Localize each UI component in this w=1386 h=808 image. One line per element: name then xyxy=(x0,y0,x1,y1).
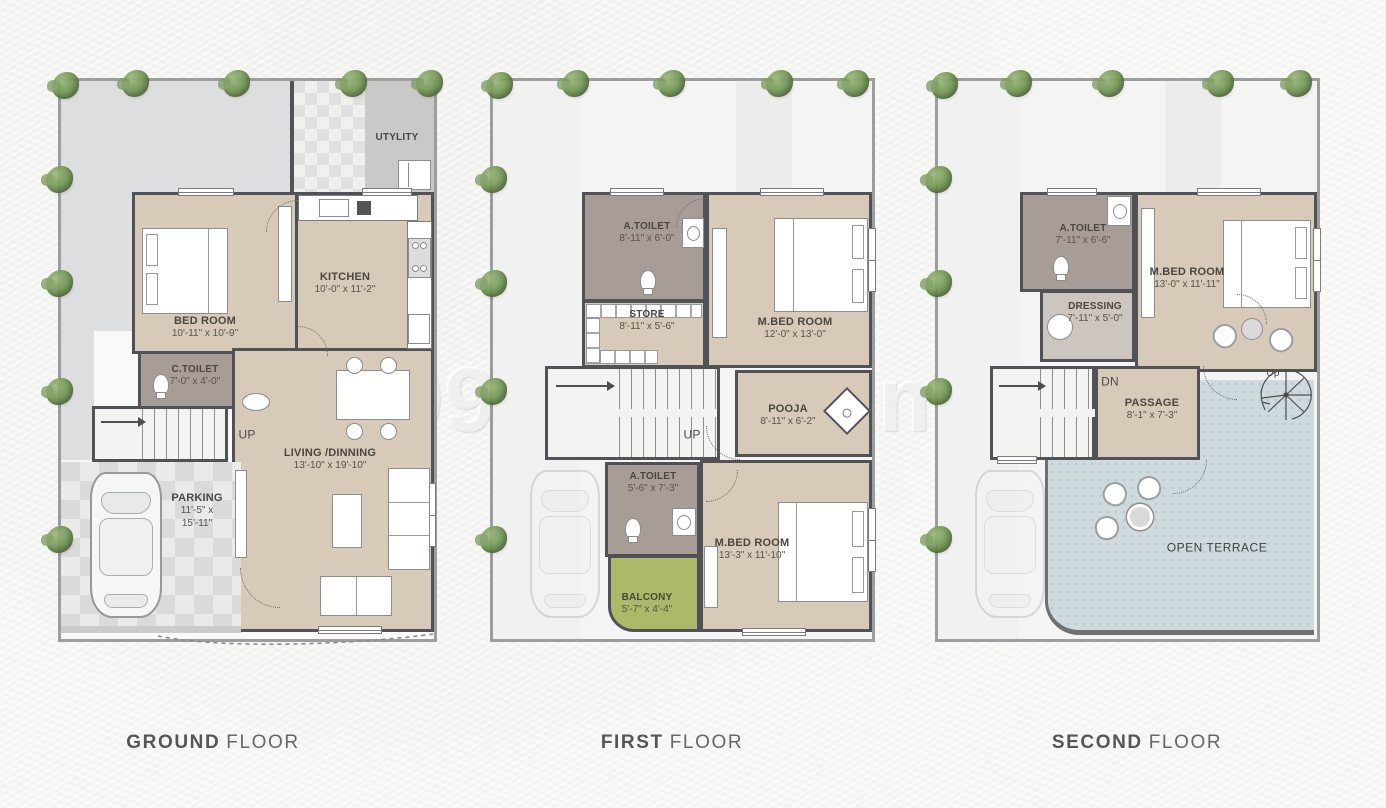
staircase xyxy=(545,366,720,460)
side-yard xyxy=(61,81,135,331)
kitchen-counter xyxy=(298,195,418,221)
tree-icon xyxy=(416,70,443,97)
room-label-mbed-bottom: M.BED ROOM13'-3" x 11'-10" xyxy=(715,537,790,563)
room-label-passage: PASSAGE8'-1" x 7'-3" xyxy=(1125,397,1179,423)
bed-icon xyxy=(142,228,228,314)
chair-icon xyxy=(380,357,397,374)
room-label-balcony: BALCONY5'-7" x 4'-4" xyxy=(622,592,673,616)
toilet-icon xyxy=(153,374,169,396)
window xyxy=(868,228,876,292)
window xyxy=(178,188,234,196)
room-label-mbed: M.BED ROOM13'-0" x 11'-11" xyxy=(1150,266,1225,292)
stairs-up-label: UP xyxy=(238,428,255,443)
wall xyxy=(290,81,294,195)
chair-icon xyxy=(346,423,363,440)
floorplan-sheet: 99acres.com xyxy=(0,0,1386,808)
ghost-car-icon xyxy=(975,470,1045,618)
ground-floor-plan: UTYLITY KITCHEN10'-0" x 11'-2" BED ROOM1… xyxy=(58,78,437,642)
chair-icon xyxy=(346,357,363,374)
window xyxy=(1197,188,1261,196)
spiral-up-label: Up xyxy=(1266,368,1279,380)
store-shelf xyxy=(600,350,658,364)
washbasin-icon xyxy=(1107,196,1131,226)
room-label-atoilet-bottom: A.TOILET5'-6" x 7'-3" xyxy=(628,471,678,495)
ghost-wall xyxy=(1165,81,1221,192)
dining-table-icon xyxy=(336,370,410,420)
car-icon xyxy=(90,472,162,618)
stairs-dn-label: DN xyxy=(1101,375,1119,390)
title-second-floor: SECONDFLOOR xyxy=(1052,732,1222,754)
sofa-icon xyxy=(320,576,392,616)
store-shelf xyxy=(586,318,600,364)
room-label-parking: PARKING11'-5" x15'-11" xyxy=(171,492,222,530)
room-label-atoilet: A.TOILET7'-11" x 6'-6" xyxy=(1055,223,1110,247)
title-first-floor: FIRSTFLOOR xyxy=(601,732,743,754)
sofa-icon xyxy=(388,468,430,570)
staircase xyxy=(92,406,228,462)
fridge-icon xyxy=(408,314,430,344)
room-label-dressing: DRESSING7'-11" x 5'-0" xyxy=(1067,301,1122,325)
room-label-mbed-top: M.BED ROOM12'-0" x 13'-0" xyxy=(758,316,833,342)
title-ground-floor: GROUNDFLOOR xyxy=(126,732,300,754)
washbasin-icon xyxy=(242,393,270,411)
window xyxy=(1313,228,1321,292)
utility-wash-tiles xyxy=(293,81,365,195)
window xyxy=(610,188,664,196)
toilet-icon xyxy=(640,270,656,292)
washbasin-icon xyxy=(672,508,696,536)
second-floor-plan: A.TOILET7'-11" x 6'-6" DRESSING7'-11" x … xyxy=(935,78,1320,642)
first-floor-plan: A.TOILET8'-11" x 6'-0" STORE8'-11" x 5'-… xyxy=(490,78,875,642)
toilet-icon xyxy=(625,518,641,540)
room-label-bedroom: BED ROOM10'-11" x 10'-9" xyxy=(172,315,238,341)
window xyxy=(742,628,806,636)
window xyxy=(868,508,876,572)
window xyxy=(1047,188,1097,196)
room-label-living: LIVING /DINNING13'-10" x 19'-10" xyxy=(284,447,376,473)
toilet-icon xyxy=(1053,256,1069,278)
washing-machine-icon xyxy=(398,160,431,190)
window xyxy=(760,188,824,196)
room-label-store: STORE8'-11" x 5'-6" xyxy=(619,309,674,333)
wardrobe-icon xyxy=(712,228,727,338)
window xyxy=(997,456,1037,464)
room-label-atoilet-top: A.TOILET8'-11" x 6'-0" xyxy=(619,221,674,245)
driveway-path xyxy=(98,624,436,650)
room-label-kitchen: KITCHEN10'-0" x 11'-2" xyxy=(315,271,376,297)
stairs-up-label: UP xyxy=(683,428,700,443)
room-label-terrace: OPEN TERRACE xyxy=(1167,541,1267,556)
bed-icon xyxy=(778,502,868,602)
stove-icon xyxy=(408,238,431,278)
chair-icon xyxy=(380,423,397,440)
room-label-pooja: POOJA8'-11" x 6'-2" xyxy=(760,403,815,429)
coffee-table-icon xyxy=(332,494,362,548)
ghost-car-icon xyxy=(530,470,600,618)
bed-icon xyxy=(774,218,868,312)
room-label-ctoilet: C.TOILET7'-0" x 4'-0" xyxy=(170,364,220,388)
room-label-utility: UTYLITY xyxy=(375,132,418,144)
wardrobe-icon xyxy=(1141,208,1155,318)
staircase xyxy=(990,366,1095,460)
tv-unit-icon xyxy=(235,470,247,558)
terrace-table-icon xyxy=(1127,504,1153,530)
ghost-wall xyxy=(736,81,792,192)
